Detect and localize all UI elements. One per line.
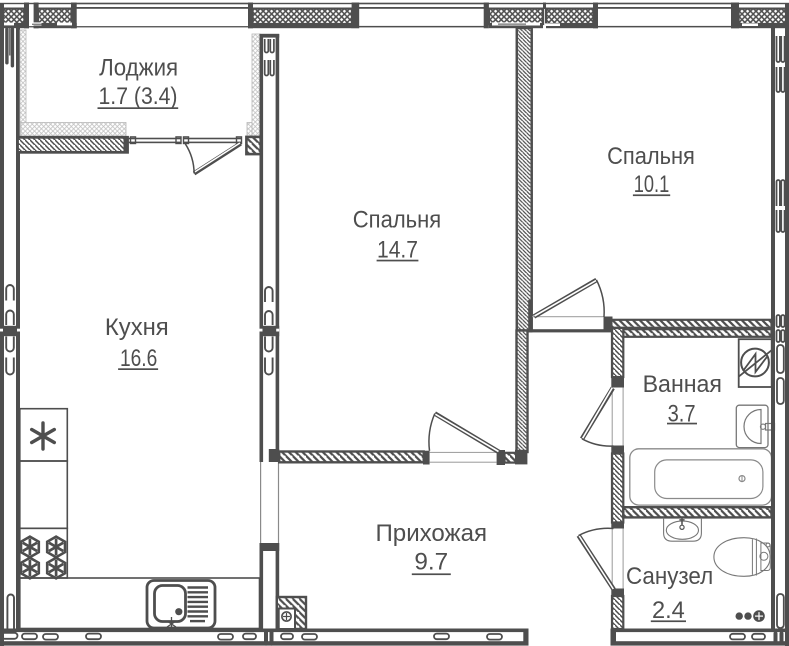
svg-text:16.6: 16.6: [120, 345, 157, 372]
svg-text:10.1: 10.1: [634, 171, 670, 198]
svg-text:Ванная: Ванная: [643, 371, 722, 398]
svg-text:14.7: 14.7: [377, 237, 418, 264]
svg-text:Лоджия: Лоджия: [99, 55, 178, 82]
svg-text:Спальня: Спальня: [607, 143, 695, 170]
svg-text:Спальня: Спальня: [353, 206, 441, 233]
svg-text:Прихожая: Прихожая: [376, 520, 488, 547]
svg-text:Санузел: Санузел: [626, 563, 713, 590]
svg-text:Кухня: Кухня: [105, 314, 169, 341]
svg-text:9.7: 9.7: [414, 549, 448, 576]
svg-text:2.4: 2.4: [652, 597, 685, 624]
svg-text:1.7 (3.4): 1.7 (3.4): [99, 83, 178, 110]
